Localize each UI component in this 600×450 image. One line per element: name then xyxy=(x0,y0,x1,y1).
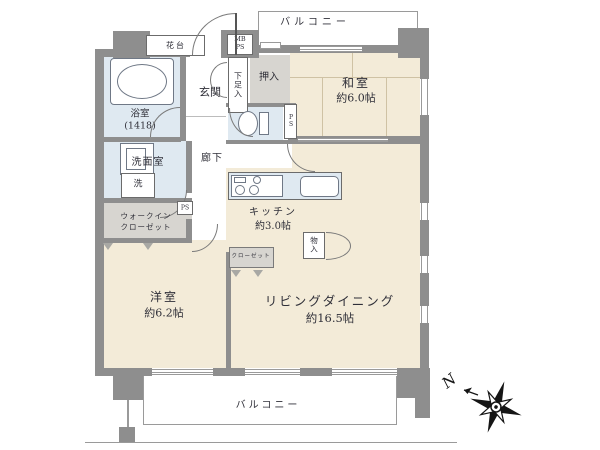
entrance-door-leaf xyxy=(235,13,237,55)
window-washitsu-balcony xyxy=(300,46,362,52)
window-living-balcony-2 xyxy=(332,369,397,375)
wall-right-2 xyxy=(420,115,429,203)
living-size: 約16.5帖 xyxy=(306,312,355,326)
wall-balcony-right-step xyxy=(415,394,430,418)
living-name: リビングダイニング xyxy=(265,294,396,309)
toilet-tank xyxy=(259,112,269,135)
wall-balcony-left-block xyxy=(113,372,143,400)
window-living-east-1 xyxy=(421,203,428,220)
stove-grill xyxy=(234,177,246,183)
laundry-label: 洗 xyxy=(133,180,142,191)
youshitsu-size: 約6.2帖 xyxy=(144,306,184,319)
wall-right-4 xyxy=(420,273,429,306)
stove-burner-1 xyxy=(235,185,245,195)
youshitsu-name: 洋室 xyxy=(150,290,178,304)
window-living-east-3 xyxy=(421,306,428,323)
wall-right-3 xyxy=(420,220,429,256)
oshiire-label: 押入 xyxy=(259,72,279,84)
hanger-mark-2 xyxy=(143,243,153,250)
wall-washroom-east xyxy=(186,141,192,193)
bathtub-oval xyxy=(117,64,167,99)
flower-stand-label: 花台 xyxy=(166,41,186,51)
window-washitsu-east xyxy=(421,79,428,115)
wall-left xyxy=(95,49,104,376)
washitsu-name: 和室 xyxy=(342,76,370,90)
sliding-door-washitsu xyxy=(298,138,388,142)
entrance-door-arc xyxy=(192,13,236,55)
window-living-balcony-1 xyxy=(245,369,300,375)
compass-rose: N xyxy=(438,363,528,445)
sink xyxy=(300,176,339,197)
pipe-space-wic-label: PS xyxy=(181,204,189,211)
wall-bottom-2 xyxy=(213,368,245,376)
closet-label: クローゼット xyxy=(231,254,270,261)
tatami-line-v1 xyxy=(352,49,353,77)
stove-burner-3 xyxy=(253,176,261,184)
small-note-box xyxy=(260,42,281,49)
washitsu-size: 約6.0帖 xyxy=(336,91,376,104)
balcony-partition-panel xyxy=(119,427,135,442)
shoe-box-door-arc-1 xyxy=(210,62,227,80)
wall-bottom-3 xyxy=(300,368,332,376)
wall-bath-washroom xyxy=(101,137,181,142)
floor-plan: バルコニー バルコニー xyxy=(0,0,600,450)
wall-toilet-south xyxy=(226,140,296,144)
compass-north-label: N xyxy=(438,369,460,392)
window-youshitsu-balcony xyxy=(152,369,213,375)
hanger-mark-1 xyxy=(103,243,113,250)
wall-right-1 xyxy=(420,49,429,79)
wall-bath-east xyxy=(180,53,186,141)
balcony-bottom-label: バルコニー xyxy=(236,400,301,412)
kitchen-name: キッチン xyxy=(249,207,297,219)
balcony-outer-edge xyxy=(85,442,457,443)
kitchen-size: 約3.0帖 xyxy=(255,221,291,233)
compass: N xyxy=(438,363,528,445)
balcony-top-label: バルコニー xyxy=(280,17,350,29)
hanger-mark-3 xyxy=(231,270,241,277)
storage-box-label: 物入 xyxy=(309,237,320,254)
shoe-box-label: 下足入 xyxy=(233,72,244,99)
walkin-closet-label-1: ウォークイン xyxy=(121,212,172,221)
bath-name: 浴室 xyxy=(130,108,149,119)
stove-burner-2 xyxy=(249,185,259,195)
washroom-label: 洗面室 xyxy=(132,157,165,169)
hallway-label: 廊下 xyxy=(201,153,223,165)
window-living-east-2 xyxy=(421,256,428,273)
tatami-line-v2 xyxy=(322,78,323,136)
pipe-space-toilet-label: PS xyxy=(288,114,295,128)
tatami-line-v3 xyxy=(386,78,387,136)
walkin-closet-label-2: クローゼット xyxy=(121,223,172,232)
entrance-step-line xyxy=(186,116,226,117)
hanger-mark-4 xyxy=(253,270,263,277)
balcony-partition-post xyxy=(127,400,129,428)
